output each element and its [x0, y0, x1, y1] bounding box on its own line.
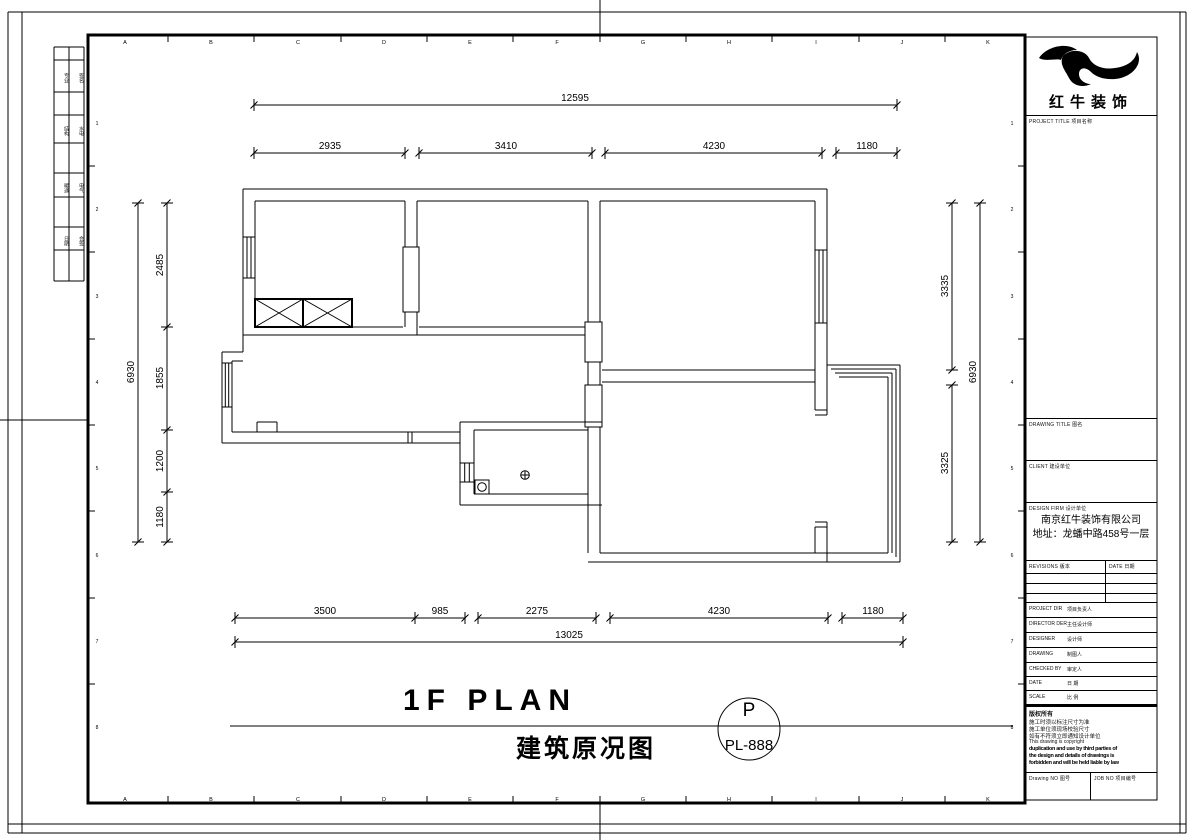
divider	[1090, 772, 1091, 800]
door-jamb-bedroom1	[403, 247, 419, 312]
svg-text:G: G	[641, 40, 645, 46]
drawing-no-label: Drawing NO 图号	[1029, 775, 1070, 782]
svg-text:1180: 1180	[155, 506, 166, 528]
svg-text:4230: 4230	[708, 606, 731, 617]
flue-shaft-box	[255, 299, 352, 327]
sheet-frame	[0, 0, 1186, 840]
divider	[1025, 690, 1157, 691]
rednow-logo-icon	[1033, 42, 1149, 90]
svg-text:6: 6	[96, 553, 99, 559]
svg-text:5: 5	[96, 466, 99, 472]
svg-text:H: H	[727, 40, 731, 46]
svg-text:H: H	[727, 797, 731, 803]
svg-text:E: E	[468, 40, 472, 46]
door-jamb-bedroom2	[585, 322, 602, 362]
badge-code: PL-888	[725, 737, 773, 754]
divider	[1025, 602, 1157, 603]
date-col-label: DATE 日期	[1109, 563, 1135, 570]
fine-print: the design and details of drawings is	[1029, 753, 1114, 759]
margin-cell: 电气	[71, 175, 84, 201]
job-no-label: JOB NO 项目编号	[1094, 775, 1136, 782]
divider	[1025, 560, 1157, 561]
svg-text:2485: 2485	[155, 253, 166, 276]
margin-cell: 会签	[71, 228, 84, 254]
divider	[1025, 418, 1157, 419]
svg-text:J: J	[901, 797, 904, 803]
plan-badge: P PL-888	[725, 700, 773, 754]
svg-text:2: 2	[1011, 207, 1014, 213]
svg-text:3: 3	[96, 294, 99, 300]
row-en: DRAWING	[1029, 651, 1067, 658]
tb-row: SCALE比 例	[1029, 694, 1153, 701]
divider	[1105, 560, 1106, 602]
svg-text:1200: 1200	[155, 449, 166, 472]
svg-text:E: E	[468, 797, 472, 803]
door-jamb-bedroom3	[585, 385, 602, 427]
svg-text:1: 1	[96, 121, 99, 127]
fine-print: forbidden and will be held liable by law	[1029, 760, 1119, 766]
svg-text:K: K	[986, 797, 990, 803]
divider	[1025, 583, 1157, 584]
svg-text:1855: 1855	[155, 366, 166, 389]
svg-text:D: D	[382, 40, 386, 46]
svg-text:3335: 3335	[940, 274, 951, 297]
svg-text:7: 7	[1011, 639, 1014, 645]
divider	[1025, 676, 1157, 677]
svg-text:C: C	[296, 40, 300, 46]
tb-row: CHECKED BY审定人	[1029, 666, 1153, 673]
svg-text:D: D	[382, 797, 386, 803]
drawing-canvas: ABCDEFGHIJK ABCDEFGHIJK 12345678 1234567…	[0, 0, 1200, 840]
floor-plan-walls	[222, 189, 900, 562]
dim-left-overall: 6930	[126, 360, 137, 383]
row-en: DIRECTOR DER	[1029, 621, 1067, 628]
svg-text:6: 6	[1011, 553, 1014, 559]
copyright-title: 版权所有	[1029, 709, 1053, 718]
firm-address: 地址：龙蟠中路458号一层	[1025, 525, 1157, 540]
svg-text:B: B	[209, 40, 213, 46]
svg-text:F: F	[555, 40, 559, 46]
svg-text:5: 5	[1011, 466, 1014, 472]
divider	[1025, 647, 1157, 648]
title-block: 红牛装饰 PROJECT TITLE 项目名称 DRAWING TITLE 图名…	[1025, 37, 1157, 800]
margin-cell: 暖通	[56, 175, 69, 201]
bathroom-fixtures	[475, 471, 529, 494]
pipe-circle	[478, 483, 487, 492]
row-en: DATE	[1029, 680, 1067, 687]
row-cn: 设计师	[1067, 636, 1082, 643]
revisions-label: REVISIONS 版本	[1029, 563, 1070, 570]
svg-text:2935: 2935	[319, 141, 342, 152]
divider	[1025, 502, 1157, 503]
margin-cell: 结构	[56, 118, 69, 144]
svg-text:985: 985	[432, 606, 449, 617]
svg-text:I: I	[815, 40, 817, 46]
row-cn: 主任设计师	[1067, 621, 1092, 628]
svg-text:A: A	[123, 797, 127, 803]
svg-text:3410: 3410	[495, 141, 518, 152]
divider	[1025, 573, 1157, 574]
svg-text:3325: 3325	[940, 451, 951, 474]
svg-text:8: 8	[96, 725, 99, 731]
tb-row: DRAWING制图人	[1029, 651, 1153, 658]
client-label: CLIENT 建设单位	[1029, 463, 1070, 470]
margin-cell: 日期	[56, 228, 69, 254]
pipe-box	[475, 480, 489, 494]
row-en: SCALE	[1029, 694, 1067, 701]
svg-text:C: C	[296, 797, 300, 803]
margin-cell: 签名	[71, 65, 84, 91]
divider	[1025, 460, 1157, 461]
balcony-railing	[827, 365, 900, 562]
divider	[1025, 593, 1157, 594]
row-cn: 审定人	[1067, 666, 1082, 673]
svg-text:K: K	[986, 40, 990, 46]
dim-top-overall: 12595	[561, 93, 589, 104]
tb-row: DIRECTOR DER主任设计师	[1029, 621, 1153, 628]
drawing-title-label: DRAWING TITLE 图名	[1029, 421, 1082, 428]
tb-row: DATE日 期	[1029, 680, 1153, 687]
svg-text:1180: 1180	[856, 141, 878, 152]
svg-text:1180: 1180	[862, 606, 884, 617]
svg-text:1: 1	[1011, 121, 1014, 127]
svg-text:3: 3	[1011, 294, 1014, 300]
badge-letter: P	[743, 700, 756, 721]
project-title-label: PROJECT TITLE 项目名称	[1029, 118, 1092, 125]
ruler-numbers-left: 12345678	[96, 121, 99, 731]
drawing-sheet: ABCDEFGHIJK ABCDEFGHIJK 12345678 1234567…	[0, 0, 1200, 840]
svg-text:B: B	[209, 797, 213, 803]
firm-name: 南京红牛装饰有限公司	[1025, 511, 1157, 526]
row-en: CHECKED BY	[1029, 666, 1067, 673]
tb-row: DESIGNER设计师	[1029, 636, 1153, 643]
svg-text:4: 4	[96, 380, 99, 386]
divider	[1025, 662, 1157, 663]
divider	[1025, 772, 1157, 773]
row-cn: 日 期	[1067, 680, 1078, 687]
dimension-labels: 12595 2935 3410 4230 1180 3500 985 2275 …	[126, 93, 979, 641]
svg-text:3500: 3500	[314, 606, 337, 617]
svg-text:7: 7	[96, 639, 99, 645]
svg-text:4230: 4230	[703, 141, 726, 152]
ruler-letters-top: ABCDEFGHIJK	[123, 40, 990, 46]
dim-right-overall: 6930	[968, 360, 979, 383]
row-en: PROJECT DIR	[1029, 606, 1067, 613]
svg-text:2: 2	[96, 207, 99, 213]
margin-cell: 水电	[71, 118, 84, 144]
fine-print: duplication and use by third parties of	[1029, 746, 1117, 752]
row-en: DESIGNER	[1029, 636, 1067, 643]
divider	[1025, 632, 1157, 633]
tb-row: PROJECT DIR项目负责人	[1029, 606, 1153, 613]
page-title: 1F PLAN	[403, 684, 577, 718]
note-line: This drawing is copyright	[1029, 739, 1084, 745]
svg-text:A: A	[123, 40, 127, 46]
ruler-numbers-right: 12345678	[1011, 121, 1014, 731]
svg-text:J: J	[901, 40, 904, 46]
dim-bottom-overall: 13025	[555, 630, 583, 641]
thick-divider	[1025, 704, 1157, 707]
divider	[1025, 617, 1157, 618]
svg-text:2275: 2275	[526, 606, 549, 617]
row-cn: 项目负责人	[1067, 606, 1092, 613]
page-subtitle: 建筑原况图	[516, 729, 656, 765]
svg-text:4: 4	[1011, 380, 1014, 386]
margin-cell: 专业	[56, 65, 69, 91]
svg-text:G: G	[641, 797, 645, 803]
divider	[1025, 115, 1157, 116]
brand-name: 红牛装饰	[1025, 91, 1157, 112]
row-cn: 比 例	[1067, 694, 1078, 701]
row-cn: 制图人	[1067, 651, 1082, 658]
